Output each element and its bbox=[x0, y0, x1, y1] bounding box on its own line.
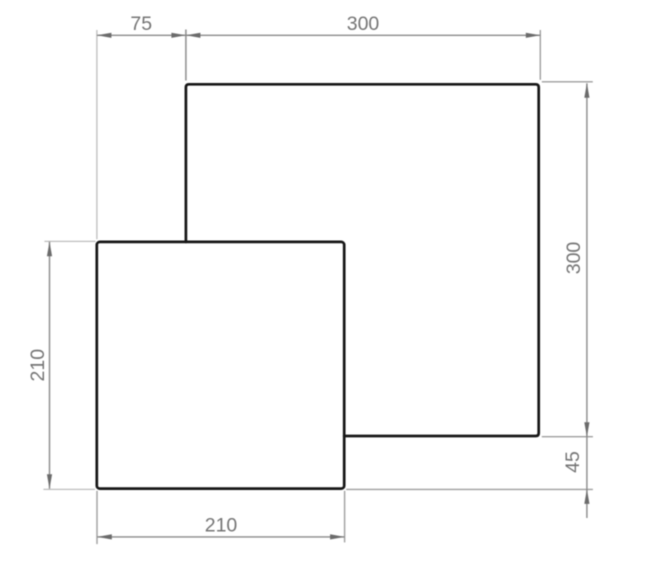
svg-text:45: 45 bbox=[562, 451, 584, 473]
svg-text:75: 75 bbox=[130, 13, 152, 35]
svg-text:210: 210 bbox=[205, 515, 238, 537]
svg-text:210: 210 bbox=[27, 349, 49, 382]
svg-text:300: 300 bbox=[347, 13, 380, 35]
svg-text:300: 300 bbox=[563, 242, 585, 275]
